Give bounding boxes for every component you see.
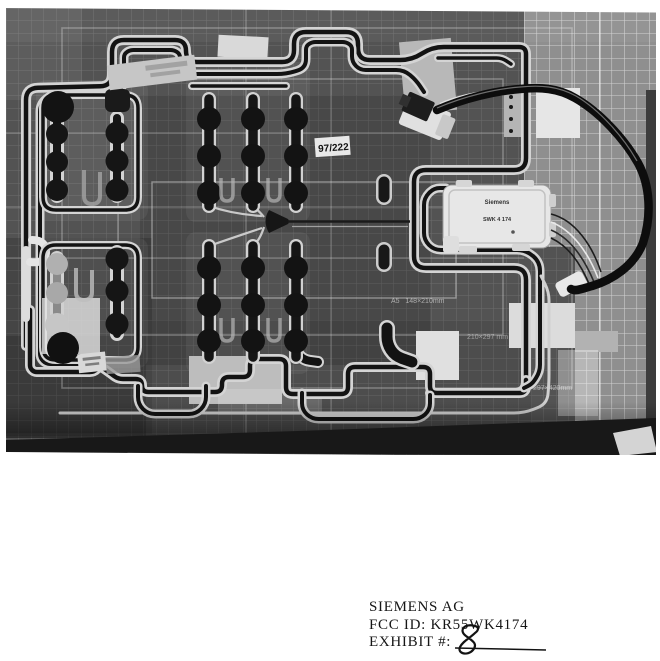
svg-text:SWK 4 174: SWK 4 174 <box>483 217 512 223</box>
svg-text:97/222: 97/222 <box>318 142 350 155</box>
svg-text:A5 148×210mm: A5 148×210mm <box>391 298 445 305</box>
svg-text:Siemens: Siemens <box>485 200 510 206</box>
svg-text:210×297 mm: 210×297 mm <box>467 334 508 341</box>
